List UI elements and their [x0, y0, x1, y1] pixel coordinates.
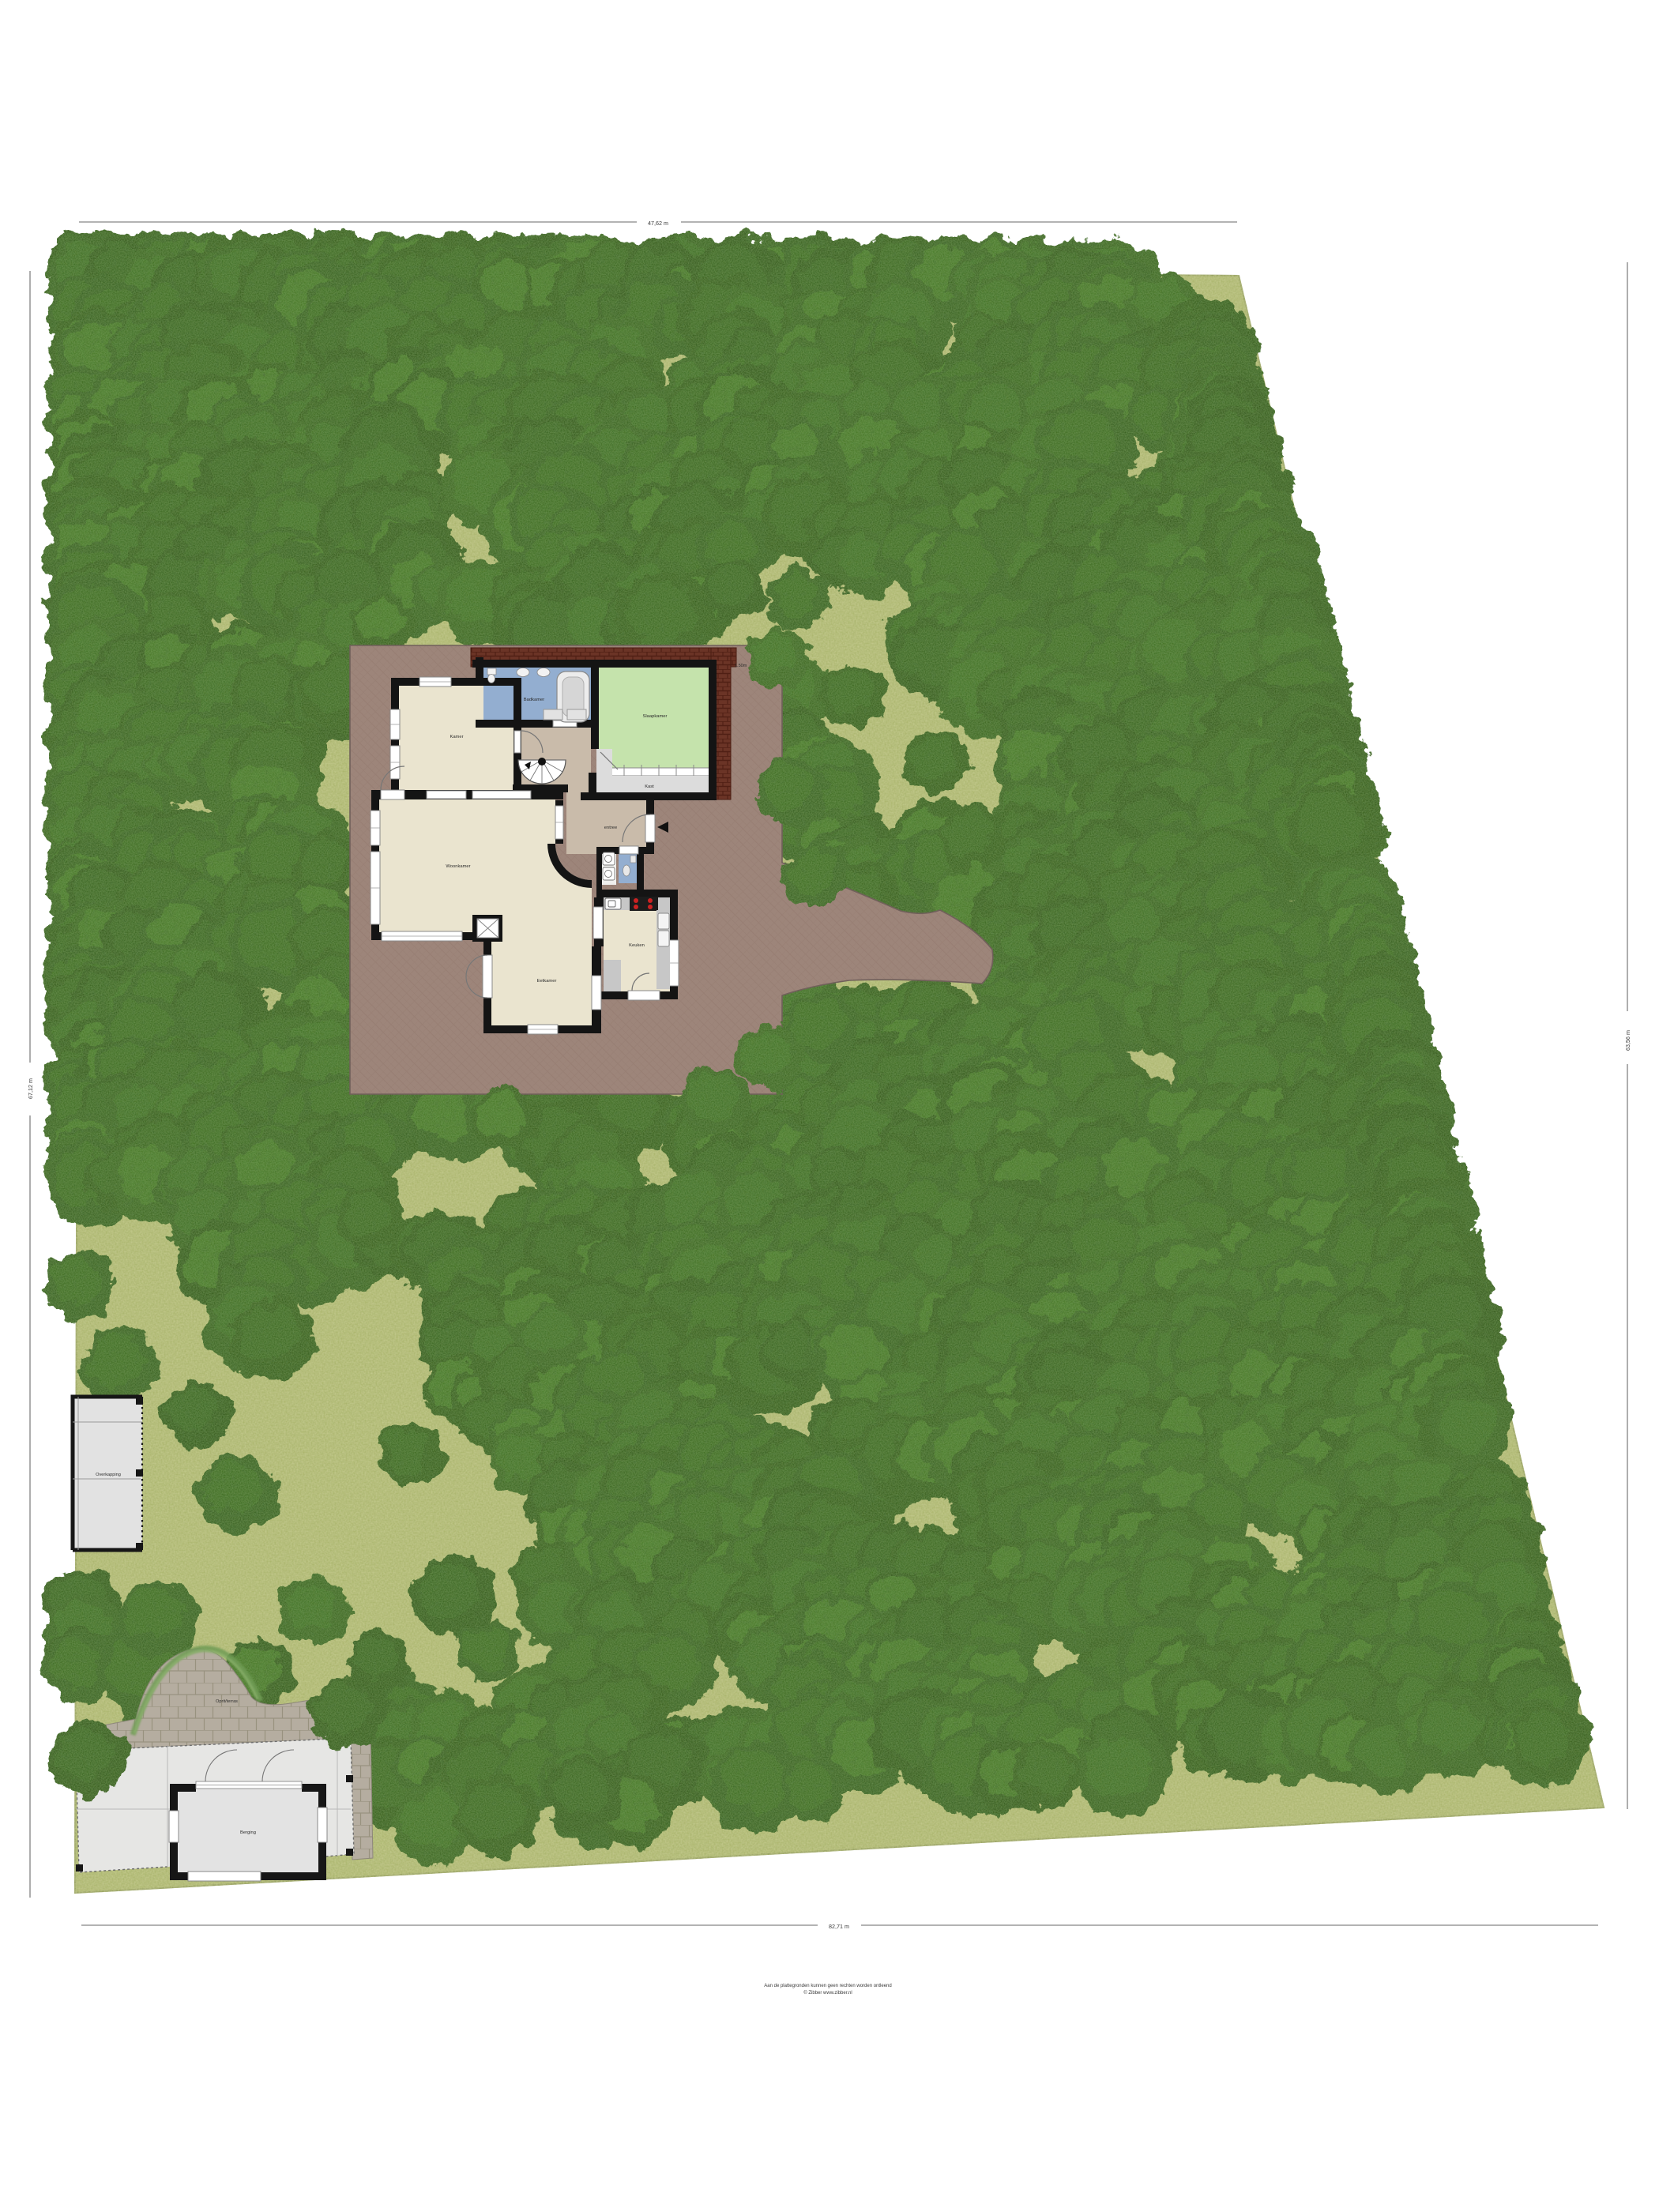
svg-text:67,12 m: 67,12 m — [27, 1078, 34, 1099]
svg-text:Woonkamer: Woonkamer — [446, 864, 470, 869]
svg-text:47,62 m: 47,62 m — [648, 220, 668, 227]
svg-text:1.50m: 1.50m — [735, 664, 747, 668]
svg-text:Overkapping: Overkapping — [96, 1473, 121, 1477]
svg-text:Slaapkamer: Slaapkamer — [643, 714, 668, 719]
svg-text:Badkamer: Badkamer — [524, 698, 544, 702]
svg-text:Berging: Berging — [240, 1830, 256, 1835]
svg-text:© Zibber www.zibber.nl: © Zibber www.zibber.nl — [803, 1990, 852, 1996]
svg-text:Aan de plattegronden kunnen ge: Aan de plattegronden kunnen geen rechten… — [764, 1984, 891, 1988]
svg-text:Kast: Kast — [645, 784, 654, 789]
svg-text:Oprit/terras: Oprit/terras — [216, 1699, 238, 1704]
svg-text:63,56 m: 63,56 m — [1624, 1030, 1631, 1051]
svg-text:82,71 m: 82,71 m — [829, 1923, 849, 1930]
svg-text:Keuken: Keuken — [629, 943, 645, 948]
svg-text:Kamer: Kamer — [450, 735, 463, 739]
svg-text:entree: entree — [604, 826, 617, 830]
svg-text:Eetkamer: Eetkamer — [537, 979, 557, 984]
